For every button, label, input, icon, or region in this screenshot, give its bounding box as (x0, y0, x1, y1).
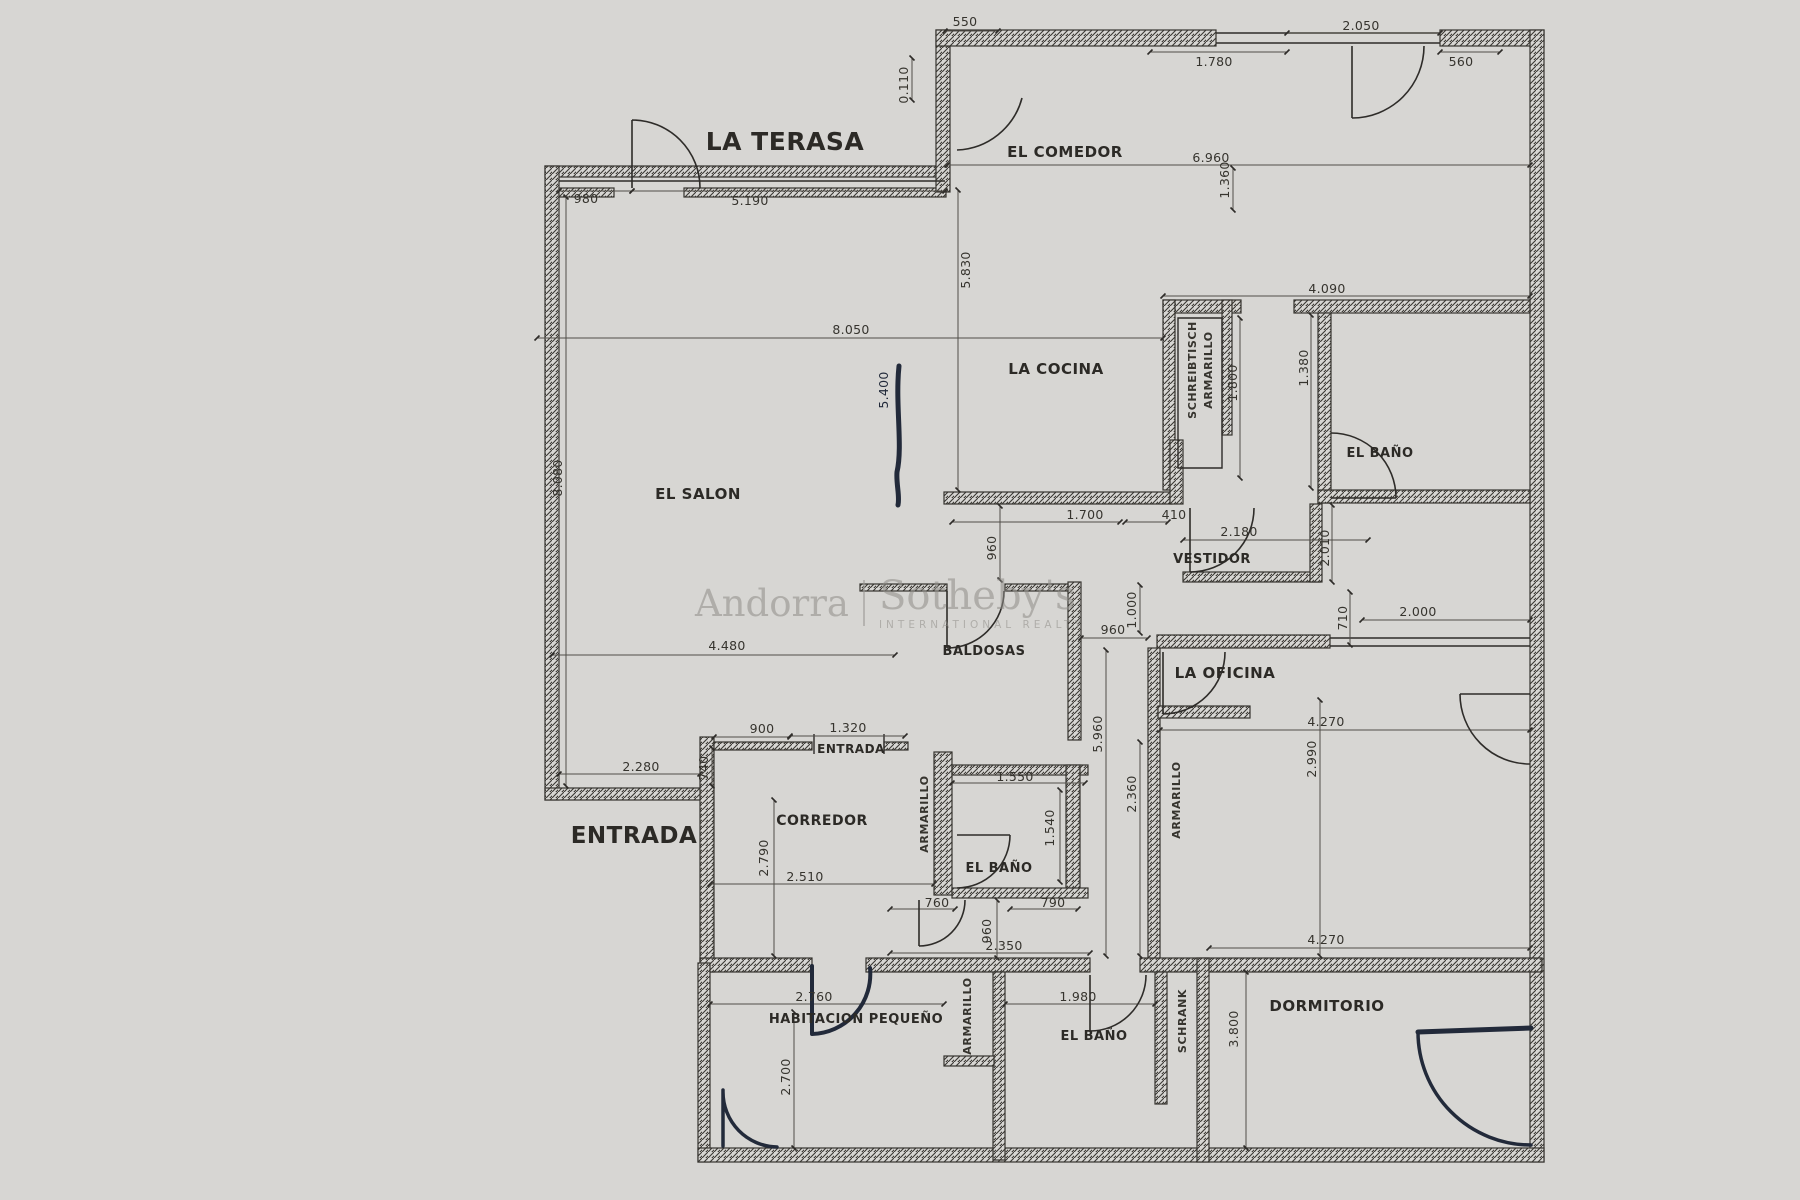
room-label-el-comedor: EL COMEDOR (1007, 143, 1123, 161)
room-label-corredor: CORREDOR (776, 813, 868, 829)
dim-8080: 8.080 (550, 459, 565, 496)
wall-top-right (1440, 30, 1544, 46)
window-oficina-north (1330, 638, 1530, 646)
dim-1380: 1.380 (1296, 349, 1311, 386)
wall-bath-mid-right (1066, 765, 1080, 898)
room-label-baldosas: BALDOSAS (943, 644, 1026, 659)
dim-5400-ink: 5.400 (876, 371, 891, 408)
wall-baldosas-top-b (1005, 584, 1068, 591)
dim-960-corridor: 960 (1101, 622, 1126, 637)
wall-corredor-top-b (884, 742, 908, 750)
wall-bath-b-schrank (1155, 972, 1167, 1104)
dim-1550: 1.550 (996, 769, 1033, 784)
wall-cocina-bottom (944, 492, 1172, 504)
room-label-dormitorio: DORMITORIO (1269, 997, 1384, 1015)
closet-label-schreibtisch: SCHREIBTISCH (1186, 321, 1199, 419)
wall-pequeno-armarillo (993, 972, 1005, 1160)
dim-740: 740 (696, 756, 711, 781)
wall-bath-tr-bottom (1318, 490, 1530, 503)
dim-2010: 2.010 (1317, 529, 1332, 566)
dim-2050: 2.050 (1342, 18, 1379, 33)
dim-960-vestidor: 960 (984, 536, 999, 561)
door-arc-oficina-east (1460, 694, 1530, 764)
dim-1320: 1.320 (829, 720, 866, 735)
dim-2360: 2.360 (1124, 775, 1139, 812)
room-labels: LA TERASA EL COMEDOR LA COCINA EL BAÑO V… (571, 127, 1414, 1044)
door-arc-bath-tr (1331, 433, 1396, 498)
wall-bottom-left-exterior (698, 963, 710, 1162)
floor-plan-scan: LA TERASA EL COMEDOR LA COCINA EL BAÑO V… (0, 0, 1800, 1200)
wall-terasa-parapet (545, 166, 947, 177)
closet-label-armarillo-pequeno: ARMARILLO (961, 977, 974, 1054)
dim-3800: 3.800 (1226, 1010, 1241, 1047)
wall-bath-mid-bottom (952, 888, 1088, 898)
room-label-la-cocina: LA COCINA (1008, 360, 1103, 378)
wall-vestidor-bottom (1183, 572, 1320, 582)
ink-wall-mark (897, 366, 899, 505)
wall-oficina-shelf (1158, 706, 1250, 718)
dim-1980: 1.980 (1059, 989, 1096, 1004)
room-label-el-salon: EL SALON (655, 485, 741, 503)
room-label-el-bano-bottom: EL BAÑO (1060, 1028, 1127, 1044)
dim-980: 980 (574, 191, 599, 206)
room-label-la-oficina: LA OFICINA (1175, 664, 1276, 682)
door-arc-comedor-window (1352, 46, 1424, 118)
dim-8050: 8.050 (832, 322, 869, 337)
wall-right-exterior (1530, 30, 1544, 1162)
closet-label-schrank: SCHRANK (1176, 989, 1189, 1053)
wall-bath-tr-north (1294, 300, 1530, 313)
wall-baldosas-top-a (860, 584, 947, 591)
dim-710: 710 (1335, 606, 1350, 631)
dim-900: 900 (750, 721, 775, 736)
dim-1360: 1.360 (1217, 161, 1232, 198)
wall-armarillo-corredor (934, 752, 952, 895)
wall-salon-bottom (545, 788, 705, 800)
dim-1780: 1.780 (1195, 54, 1232, 69)
dim-2000: 2.000 (1399, 604, 1436, 619)
floor-plan-svg: LA TERASA EL COMEDOR LA COCINA EL BAÑO V… (0, 0, 1800, 1200)
door-arc-baldosas (947, 591, 1004, 648)
closet-label-armarillo-corredor: ARMARILLO (918, 775, 931, 852)
dim-2510: 2.510 (786, 869, 823, 884)
door-arc-terasa (632, 120, 700, 188)
window-top (1216, 33, 1440, 43)
dim-2790: 2.790 (756, 839, 771, 876)
dim-550: 550 (953, 14, 978, 29)
dim-2180: 2.180 (1220, 524, 1257, 539)
door-arc-oficina-west (1163, 652, 1225, 714)
wall-dormitorio-left (1197, 958, 1209, 1162)
wall-cocina-vestidor (1170, 440, 1183, 504)
room-label-la-terasa: LA TERASA (706, 127, 865, 156)
wall-comedor-left (936, 30, 950, 192)
windows (559, 33, 1530, 754)
wall-section-a (700, 958, 812, 972)
dim-1540: 1.540 (1042, 809, 1057, 846)
room-label-entrada-big: ENTRADA (571, 823, 698, 849)
walls (545, 30, 1544, 1162)
wall-section-b (866, 958, 1090, 972)
dim-410: 410 (1162, 507, 1187, 522)
dim-2700: 2.700 (778, 1058, 793, 1095)
dim-2280: 2.280 (622, 759, 659, 774)
dim-5190: 5.190 (731, 193, 768, 208)
room-label-vestidor: VESTIDOR (1173, 552, 1251, 567)
room-label-el-bano-mid: EL BAÑO (965, 860, 1032, 876)
wall-pequeno-shelf (944, 1056, 994, 1066)
dim-790: 790 (1041, 895, 1066, 910)
dim-4270-oficina: 4.270 (1307, 714, 1344, 729)
dim-5830: 5.830 (958, 251, 973, 288)
dim-4480: 4.480 (708, 638, 745, 653)
room-label-habitacion-pequeno: HABITACION PEQUEÑO (769, 1011, 943, 1027)
dim-5960: 5.960 (1090, 715, 1105, 752)
wall-oficina-left (1148, 648, 1160, 963)
room-label-el-bano-tr: EL BAÑO (1346, 445, 1413, 461)
wall-corredor-top-a (714, 742, 812, 750)
room-label-entrada-small: ENTRADA (817, 742, 885, 756)
dim-1000: 1.000 (1124, 591, 1139, 628)
dim-2760: 2.760 (795, 989, 832, 1004)
dim-4270-dormitorio: 4.270 (1307, 932, 1344, 947)
ink-door-dormitorio-arc (1418, 1032, 1531, 1145)
dim-1800: 1.800 (1225, 364, 1240, 401)
wall-oficina-top (1157, 635, 1330, 648)
dim-2990: 2.990 (1304, 740, 1319, 777)
dim-1700: 1.700 (1066, 507, 1103, 522)
ink-door-dormitorio (1418, 1028, 1531, 1032)
wall-bottom-exterior (698, 1148, 1544, 1162)
dim-560: 560 (1449, 54, 1474, 69)
door-arc-bath-bottom (1090, 975, 1146, 1031)
dim-0110: 0.110 (896, 66, 911, 103)
closet-inner-box (1178, 318, 1222, 468)
dim-2350: 2.350 (985, 938, 1022, 953)
dim-760: 760 (925, 895, 950, 910)
closet-label-armarillo-oficina: ARMARILLO (1170, 761, 1183, 838)
dim-4090: 4.090 (1308, 281, 1345, 296)
wall-bath-tr-left (1318, 313, 1331, 503)
wall-salon-north-b (684, 188, 946, 197)
wall-top-left (936, 30, 1216, 46)
ink-door-bottom-left (723, 1090, 777, 1147)
wall-baldosas-right (1068, 582, 1081, 740)
closet-label-armarillo-cocina: ARMARILLO (1202, 331, 1215, 408)
